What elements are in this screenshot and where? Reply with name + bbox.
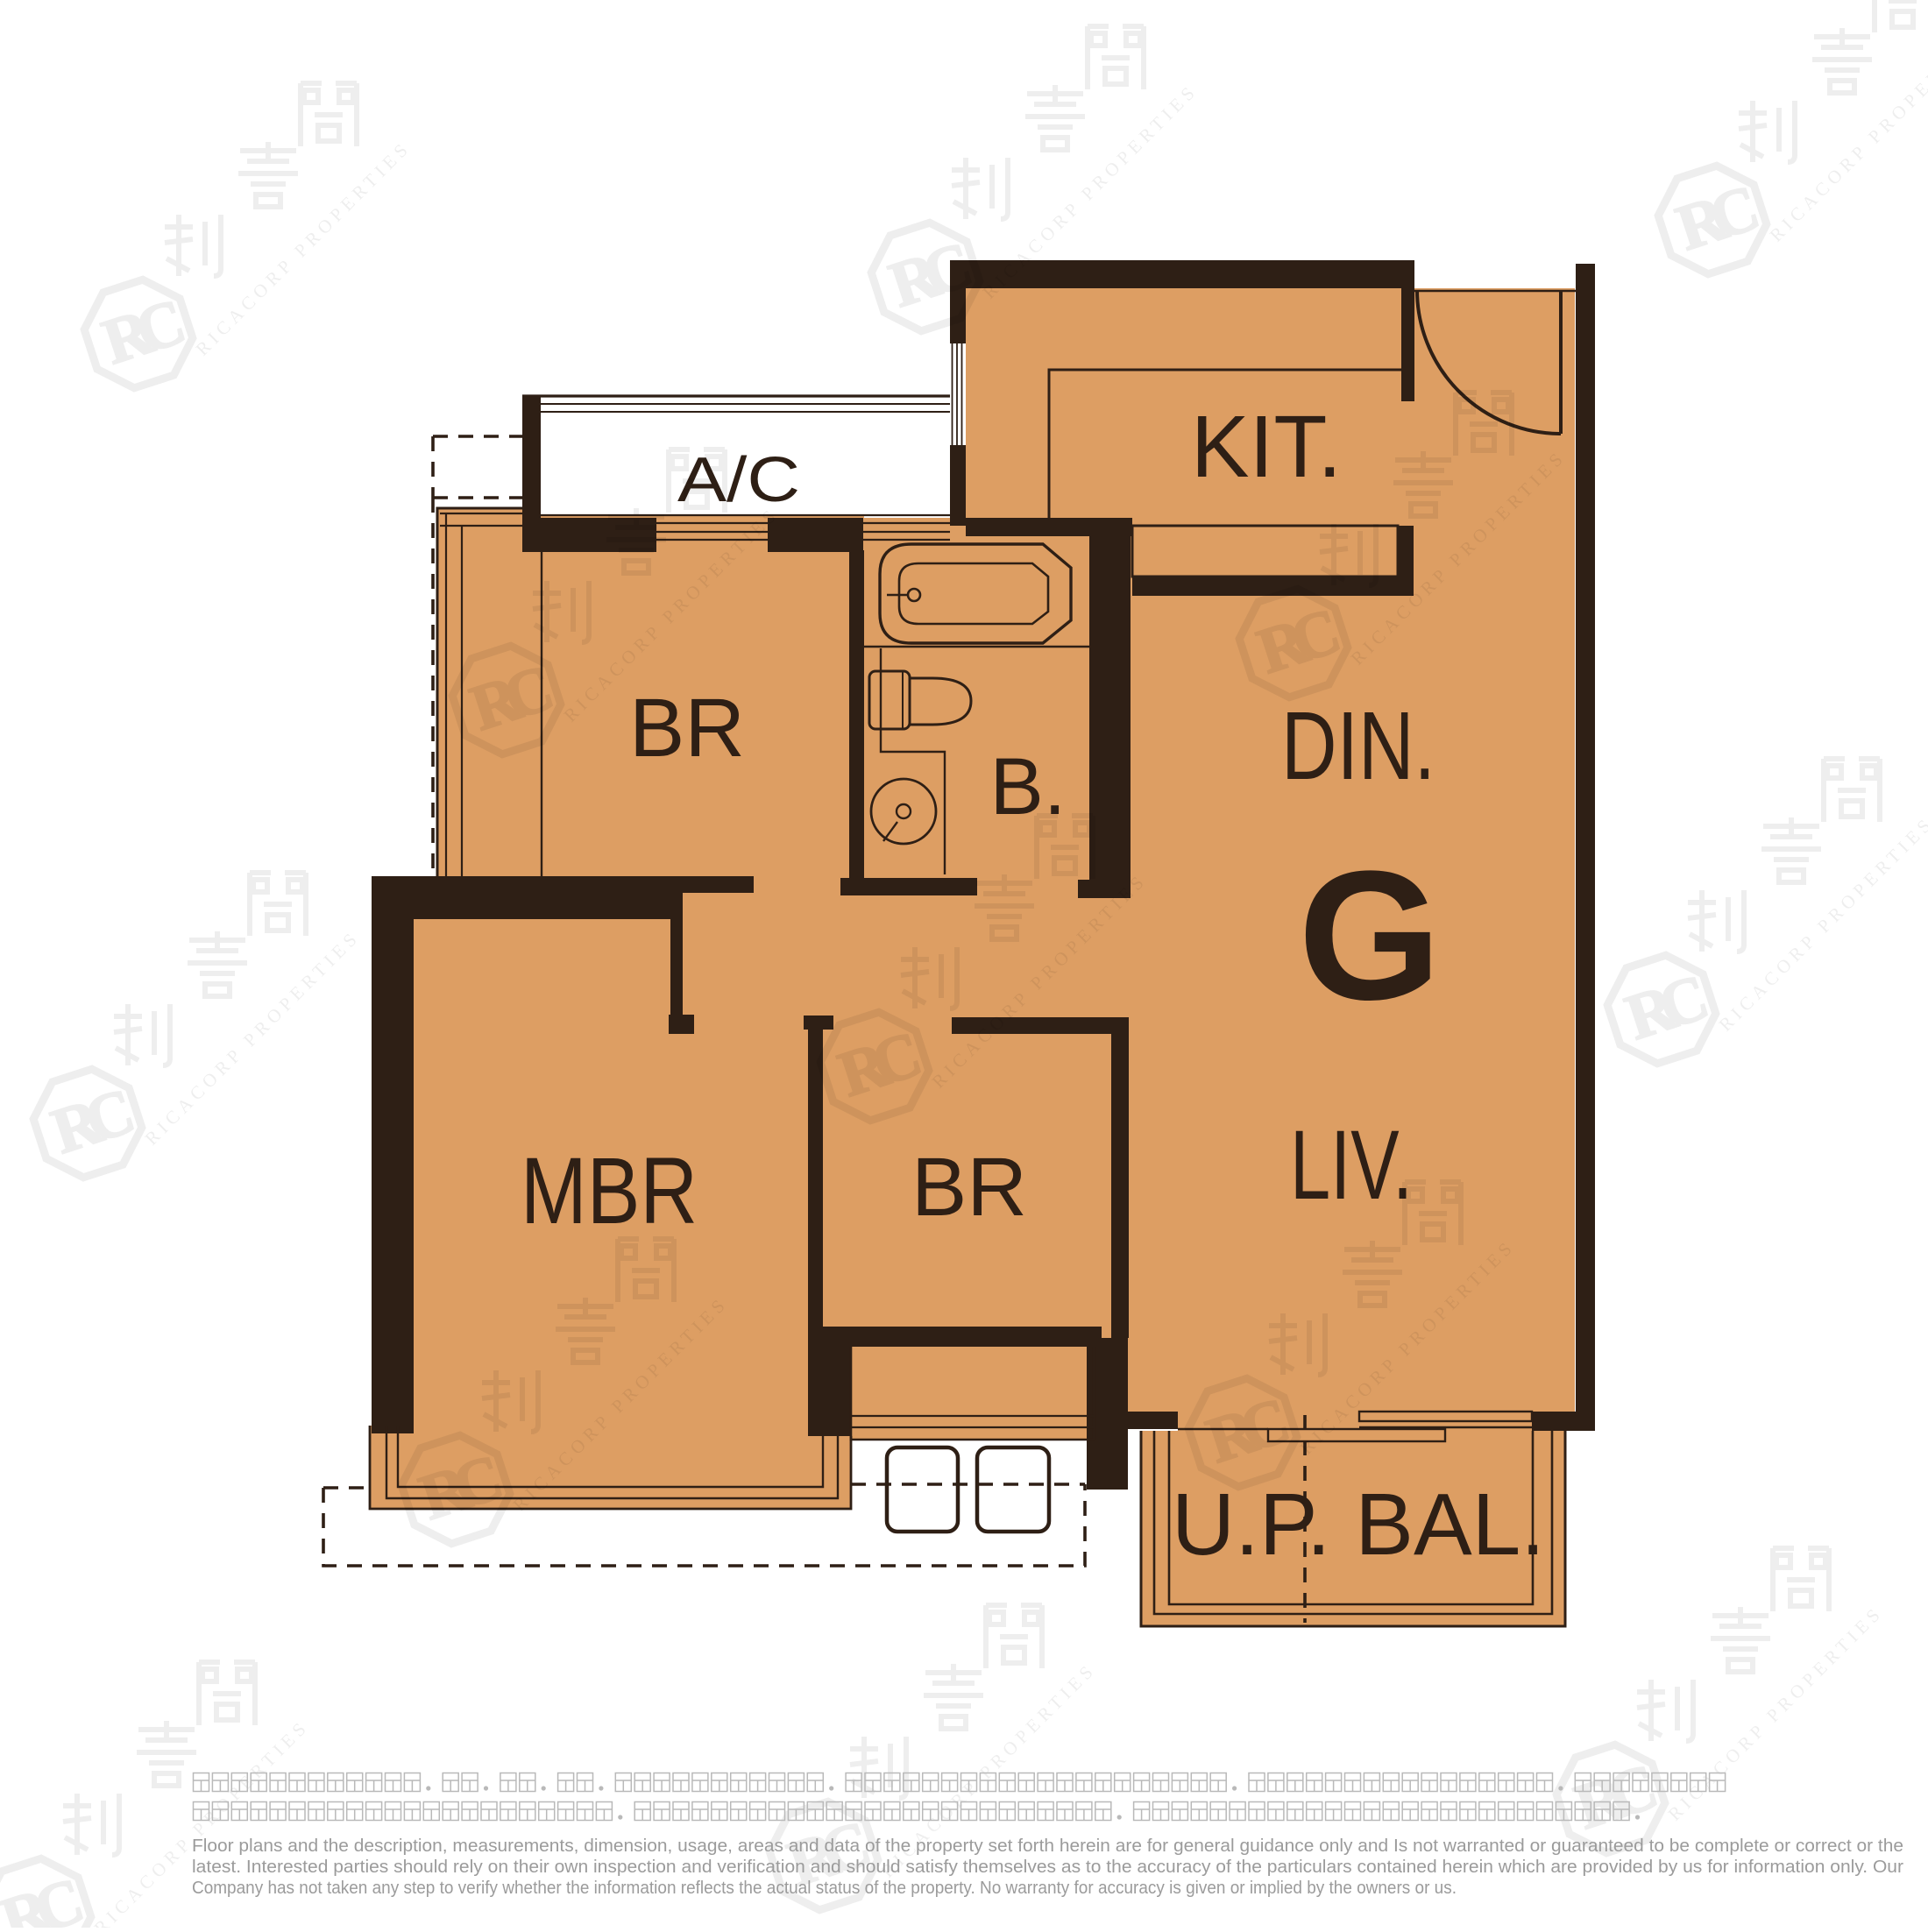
svg-text:BR: BR: [911, 1141, 1027, 1234]
svg-text:G: G: [1298, 832, 1441, 1038]
svg-text:LIV.: LIV.: [1290, 1110, 1413, 1220]
svg-text:BR: BR: [629, 682, 745, 775]
svg-text:Floor plans and the descriptio: Floor plans and the description, measure…: [192, 1836, 1903, 1856]
svg-text:KIT.: KIT.: [1191, 398, 1342, 496]
svg-text:U.P. BAL.: U.P. BAL.: [1172, 1476, 1545, 1574]
svg-text:MBR: MBR: [521, 1137, 698, 1243]
svg-text:DIN.: DIN.: [1281, 692, 1435, 800]
svg-text:Company has not taken any step: Company has not taken any step to verify…: [192, 1879, 1457, 1898]
svg-text:latest. Interested parties sho: latest. Interested parties should rely o…: [192, 1858, 1903, 1877]
